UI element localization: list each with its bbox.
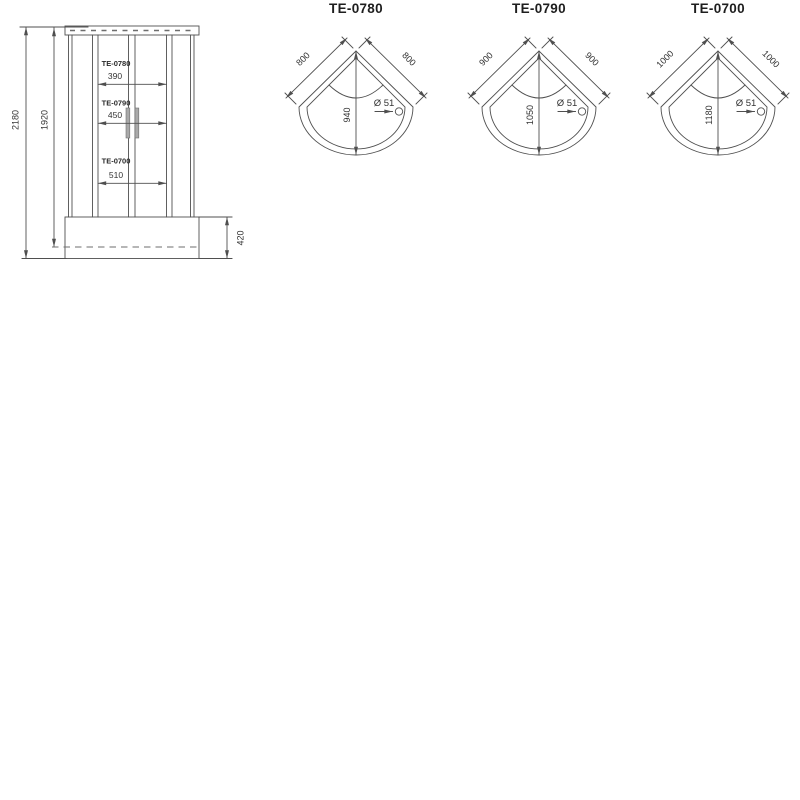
drain-circle <box>757 108 764 115</box>
door-width-row-te0700: TE-0700 510 <box>98 157 167 184</box>
door-width-row-te0790: TE-0790 450 <box>98 99 167 124</box>
tray-height-label: 420 <box>236 230 246 245</box>
model-label: TE-0790 <box>102 99 131 108</box>
side-label-right: 1000 <box>760 48 781 69</box>
depth-label: 940 <box>342 107 352 122</box>
side-dimension-right <box>365 38 426 98</box>
side-label-left: 900 <box>477 50 495 68</box>
tray-plan-svg: 800 800 940 Ø 51 <box>266 27 446 192</box>
side-dimension-right <box>727 38 788 98</box>
side-dimension-left <box>648 38 709 98</box>
tray-model-title: TE-0790 <box>449 0 629 17</box>
side-label-right: 900 <box>583 50 601 68</box>
base-tray <box>65 217 199 259</box>
frame-height-label: 1920 <box>40 110 50 130</box>
tray-view-te-0790: TE-0790 900 900 1050 Ø 51 <box>449 0 629 192</box>
side-dimension-left <box>286 38 347 98</box>
dim-frame-height: 1920 <box>40 28 55 247</box>
model-label: TE-0780 <box>102 59 131 68</box>
door-width-label: 450 <box>108 110 122 120</box>
tray-view-te-0780: TE-0780 800 800 940 Ø 51 <box>266 0 446 192</box>
side-dimension-right <box>548 38 609 98</box>
tray-model-title: TE-0700 <box>628 0 800 17</box>
technical-drawing: 2180 1920 420 TE-0780 390 <box>0 0 800 800</box>
side-dimension-left <box>469 38 530 98</box>
dim-tray-height: 420 <box>199 217 246 259</box>
glass-posts <box>69 35 195 217</box>
tray-plan-svg: 900 900 1050 Ø 51 <box>449 27 629 192</box>
drain-circle <box>578 108 585 115</box>
model-label: TE-0700 <box>102 157 131 166</box>
elevation-drawing: 2180 1920 420 TE-0780 390 <box>0 0 260 272</box>
tray-plan-svg: 1000 1000 1180 Ø 51 <box>628 27 800 192</box>
drain-diameter-label: Ø 51 <box>557 98 578 109</box>
door-width-label: 390 <box>108 71 122 81</box>
door-width-row-te0780: TE-0780 390 <box>98 59 167 84</box>
side-label-right: 800 <box>400 50 418 68</box>
door-width-label: 510 <box>109 170 123 180</box>
depth-label: 1050 <box>525 105 535 125</box>
side-label-left: 1000 <box>654 48 675 69</box>
cabin-base <box>52 217 199 259</box>
tray-view-te-0700: TE-0700 1000 1000 1180 Ø 51 <box>628 0 800 192</box>
depth-label: 1180 <box>704 105 714 124</box>
drain-diameter-label: Ø 51 <box>736 98 757 109</box>
dim-overall-height: 2180 <box>11 27 89 259</box>
overall-height-label: 2180 <box>11 110 21 130</box>
drain-circle <box>395 108 402 115</box>
side-label-left: 800 <box>294 50 312 68</box>
cabin-frame-posts <box>69 35 195 217</box>
drain-diameter-label: Ø 51 <box>374 98 395 109</box>
tray-model-title: TE-0780 <box>266 0 446 17</box>
